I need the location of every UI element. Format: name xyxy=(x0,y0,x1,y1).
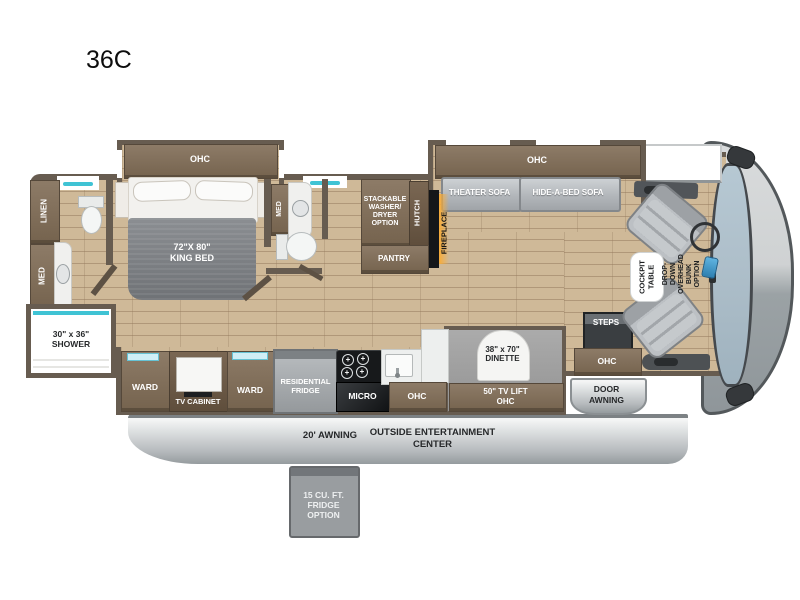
drop-down-bunk-label-wrap: DROP-DOWN OVERHEAD BUNK OPTION xyxy=(662,230,702,318)
kitchen-counter-end xyxy=(421,329,449,383)
rear-toilet-bowl xyxy=(81,206,102,234)
cockpit-table-label-wrap: COCKPIT TABLE xyxy=(631,253,663,301)
burner-icon: + xyxy=(357,353,369,365)
shower-glass xyxy=(33,311,109,315)
ward-right xyxy=(227,351,275,412)
pantry-label: PANTRY xyxy=(361,245,427,272)
dash-console-bottom-vent xyxy=(654,358,678,366)
bedroom-slide-window-right xyxy=(279,150,284,178)
ward-left-window xyxy=(127,353,159,361)
rear-sink xyxy=(56,264,70,284)
faucet-base-icon xyxy=(395,373,400,378)
linen-label: LINEN xyxy=(39,199,48,223)
burner-icon: + xyxy=(341,367,353,379)
rear-bath-window-glass xyxy=(63,182,93,186)
cockpit-table-label: COCKPIT TABLE xyxy=(638,260,655,294)
med-mid-label: MED xyxy=(275,201,283,217)
king-bed-label: 72"X 80" KING BED xyxy=(128,240,256,266)
hutch-label: HUTCH xyxy=(414,200,423,226)
kitchen-ohc-label: OHC xyxy=(389,382,445,410)
ward-left-label: WARD xyxy=(121,380,169,394)
bedroom-ohc-label: OHC xyxy=(124,144,276,174)
bedroom-slide-window-left xyxy=(117,150,122,178)
pillow-right xyxy=(195,180,254,202)
med-mid-label-wrap: MED xyxy=(271,184,288,234)
mid-toilet-bowl xyxy=(286,232,317,261)
fridge-option-label: 15 CU. FT. FRIDGE OPTION xyxy=(289,481,358,529)
outside-entertainment-label: OUTSIDE ENTERTAINMENT CENTER xyxy=(350,425,515,452)
tv-lift-ohc-label: 50" TV LIFT OHC xyxy=(449,383,562,410)
sofa-ohc-label: OHC xyxy=(435,145,639,175)
windshield xyxy=(710,163,753,387)
fireplace-label: FIREPLACE xyxy=(441,212,450,255)
fridge-option-flap xyxy=(291,468,358,476)
burner-icon: + xyxy=(356,366,368,378)
hide-a-bed-sofa-label: HIDE-A-BED SOFA xyxy=(519,177,617,208)
bedroom-wall xyxy=(264,179,271,247)
drop-down-bunk-label: DROP-DOWN OVERHEAD BUNK OPTION xyxy=(662,254,702,294)
washer-dryer-label: STACKABLE WASHER/ DRYER OPTION xyxy=(361,181,409,243)
rv-floorplan: 36C 20' AWNING OUTSIDE ENTERTAINMENT CEN… xyxy=(0,0,800,600)
burner-icon: + xyxy=(342,354,354,366)
shower-floor-ridges xyxy=(33,354,109,371)
dinette-label: 38" x 70" DINETTE xyxy=(472,341,533,367)
med-rear-label-wrap: MED xyxy=(30,244,54,308)
hutch-label-wrap: HUTCH xyxy=(409,181,427,245)
pillow-left xyxy=(133,180,192,202)
door-awning-label: DOOR AWNING xyxy=(570,381,643,408)
fireplace-label-wrap: FIREPLACE xyxy=(437,196,453,270)
ward-right-window xyxy=(232,352,268,360)
ward-right-label: WARD xyxy=(227,383,273,397)
mid-sink xyxy=(292,200,309,217)
rear-bath-wall xyxy=(106,179,113,265)
residential-fridge-top xyxy=(275,351,336,359)
shower-label: 30" x 36" SHOWER xyxy=(26,326,116,352)
tv-screen xyxy=(176,357,222,392)
residential-fridge-label: RESIDENTIAL FRIDGE xyxy=(273,374,338,400)
linen-label-wrap: LINEN xyxy=(30,180,58,242)
microwave-label: MICRO xyxy=(336,382,389,410)
med-rear-label: MED xyxy=(37,267,46,285)
page-title: 36C xyxy=(86,46,176,76)
mid-bath-wall-right xyxy=(322,179,328,239)
entry-ohc-label: OHC xyxy=(574,348,640,374)
tv-cabinet-label: TV CABINET xyxy=(165,396,231,409)
